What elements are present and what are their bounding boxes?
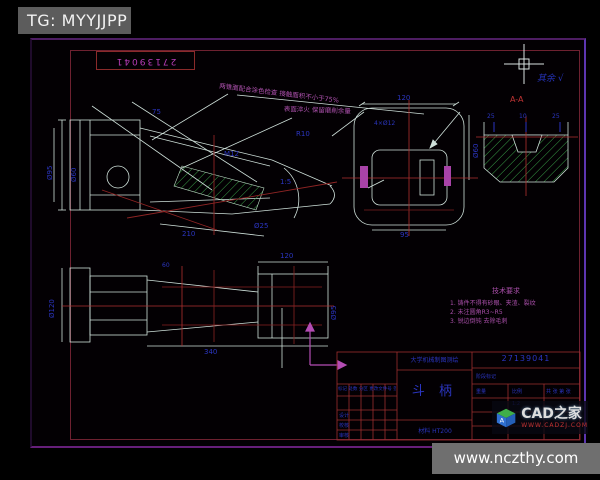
dim-front-dia: Ø60 bbox=[472, 144, 480, 158]
tg-watermark-label: TG: MYYJJPP bbox=[18, 7, 131, 34]
section-label: A-A bbox=[510, 95, 523, 104]
titleblock-material: 材料 HT200 bbox=[399, 426, 471, 435]
dim-main-dia95: Ø95 bbox=[46, 166, 54, 180]
titleblock-weight: 重量 bbox=[476, 388, 486, 395]
dim-section-2: 10 bbox=[519, 113, 527, 120]
cad-screenshot: 27139041 其余 √ A-A 两锥面配合涂色检查 接触面积不小于75% 表… bbox=[0, 0, 600, 480]
svg-text:A: A bbox=[500, 416, 505, 424]
front-view-details bbox=[360, 166, 451, 188]
cube-logo-icon: A bbox=[495, 406, 517, 430]
drawing-canvas: 27139041 其余 √ A-A 两锥面配合涂色检查 接触面积不小于75% 表… bbox=[30, 38, 586, 448]
corner-part-number: 27139041 bbox=[115, 56, 177, 66]
dim-main-thread: M12 bbox=[224, 150, 239, 158]
dim-main-dia25: Ø25 bbox=[254, 222, 268, 230]
surface-finish-note: 其余 √ bbox=[537, 71, 564, 84]
site-url-bar: www.nczthy.com bbox=[432, 443, 600, 474]
finish-label: 其余 bbox=[537, 74, 555, 84]
titleblock-sheets: 共 张 第 张 bbox=[546, 388, 571, 395]
dim-bottom-dia120: Ø120 bbox=[48, 299, 56, 318]
dim-front-width: 120 bbox=[397, 94, 410, 102]
dim-bottom-120: 120 bbox=[280, 252, 293, 260]
note-item: 3. 锐边倒钝 去除毛刺 bbox=[440, 317, 572, 326]
cad-drawing-geometry bbox=[32, 40, 588, 450]
bottom-view-geometry bbox=[62, 262, 328, 368]
dim-bottom-dia95: Ø95 bbox=[330, 306, 338, 320]
front-view-geometry bbox=[354, 102, 469, 230]
dim-front-holes: 4×Ø12 bbox=[374, 120, 395, 127]
dim-section-3: 25 bbox=[552, 113, 560, 120]
notes-title: 技术要求 bbox=[440, 286, 572, 296]
dim-bottom-60: 60 bbox=[162, 262, 170, 269]
site-url-text: www.nczthy.com bbox=[454, 449, 579, 467]
dim-main-taper: 1:5 bbox=[280, 178, 291, 186]
section-view-ticks bbox=[494, 122, 560, 132]
titleblock-school: 大学机械制图测绘 bbox=[398, 355, 471, 364]
technical-notes: 技术要求 1. 铸件不得有砂眼、夹渣、裂纹 2. 未注圆角R3~R5 3. 锐边… bbox=[440, 286, 572, 326]
tg-label-text: TG: MYYJJPP bbox=[27, 11, 127, 30]
dim-section-1: 25 bbox=[487, 113, 495, 120]
cadzj-watermark: A CAD之家 WWW.CADZJ.COM bbox=[492, 401, 588, 434]
note-item: 2. 未注圆角R3~R5 bbox=[440, 308, 572, 317]
corner-part-number-box: 27139041 bbox=[96, 51, 195, 70]
bottom-view-centerlines bbox=[62, 266, 334, 346]
dim-bottom-340: 340 bbox=[204, 348, 217, 356]
dim-main-dia60: Ø60 bbox=[70, 168, 78, 182]
titleblock-drawing-number: 27139041 bbox=[473, 354, 579, 363]
dim-front-height: 95 bbox=[400, 231, 409, 239]
titleblock-stage: 阶段标记 bbox=[476, 373, 496, 380]
titleblock-role: 审核 bbox=[339, 432, 349, 439]
dim-main-75: 75 bbox=[152, 108, 161, 116]
brand-url: WWW.CADZJ.COM bbox=[521, 422, 588, 429]
titleblock-revision-header: 标记 处数 分区 更改文件号 签名 年月日 bbox=[338, 386, 396, 392]
dim-main-length: 210 bbox=[182, 230, 195, 238]
titleblock-role: 校核 bbox=[339, 422, 349, 429]
main-view-geometry bbox=[54, 94, 424, 236]
dim-main-radius: R10 bbox=[296, 130, 310, 138]
titleblock-part-name: 斗 柄 bbox=[398, 380, 471, 399]
roughness-mark-icon: √ bbox=[558, 74, 564, 84]
titleblock-scale: 比例 bbox=[512, 388, 522, 395]
titleblock-role: 设计 bbox=[339, 412, 349, 419]
note-item: 1. 铸件不得有砂眼、夹渣、裂纹 bbox=[440, 299, 572, 308]
brand-name: CAD之家 bbox=[521, 407, 588, 422]
